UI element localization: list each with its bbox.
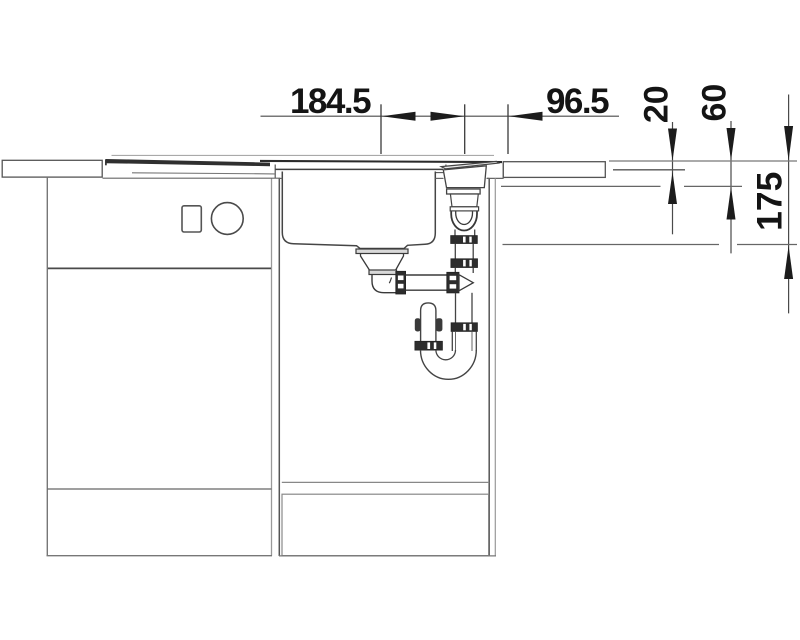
svg-text:20: 20 [638,85,676,123]
svg-text:175: 175 [750,172,790,231]
svg-text:60: 60 [696,84,734,122]
svg-text:184.5: 184.5 [290,82,371,121]
svg-text:96.5: 96.5 [546,82,609,121]
